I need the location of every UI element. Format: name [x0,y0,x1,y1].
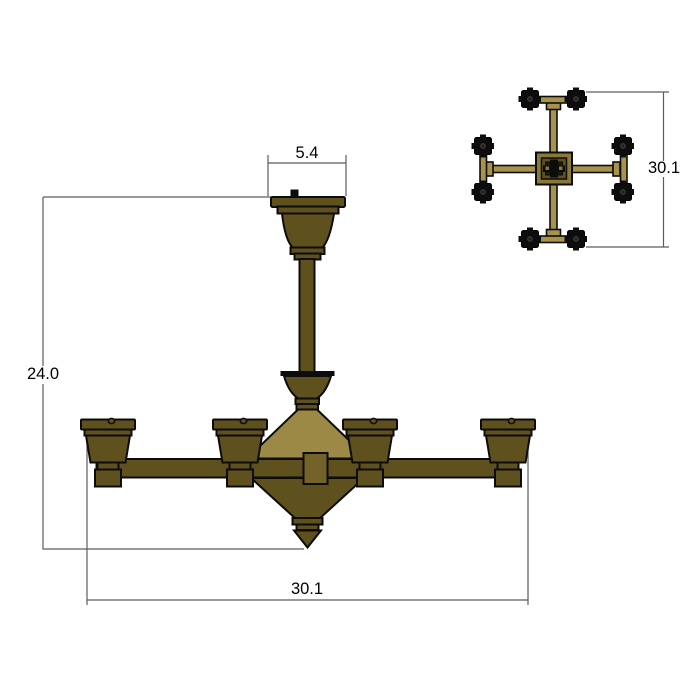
technical-drawing-canvas: 5.4 24.0 30.1 30.1 [0,0,700,700]
top-view-overall-label: 30.1 [648,159,680,177]
top-view-shade [519,88,542,111]
dimension-canopy-width: 5.4 [268,144,346,196]
screw-detail [508,418,514,423]
finial [293,518,323,548]
chandelier-drawing: 5.4 24.0 30.1 30.1 [0,0,700,700]
top-view-shade [472,181,495,204]
front-view [81,190,535,548]
screw-detail [370,418,376,423]
center-block [304,453,328,484]
top-view-shade [519,228,542,251]
ceiling-canopy [271,197,345,260]
screw-detail [108,418,114,423]
top-view-shade [565,88,588,111]
top-view-shade [472,135,495,158]
screw-detail [240,418,246,423]
stem-flare [281,371,335,410]
overall-height-label: 24.0 [27,365,59,383]
stem [300,259,315,374]
top-view-shade [612,181,635,204]
dimension-overall-height: 24.0 [27,197,304,550]
top-view-canopy [536,153,572,185]
overall-width-label: 30.1 [291,580,323,598]
top-view [472,88,635,251]
top-view-shade [565,228,588,251]
top-view-shade [612,135,635,158]
canopy-width-label: 5.4 [296,144,319,162]
